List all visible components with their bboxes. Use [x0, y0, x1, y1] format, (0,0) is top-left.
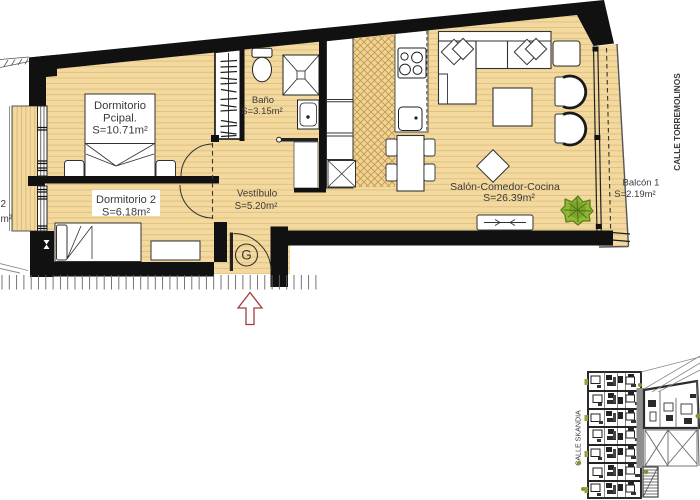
- svg-text:G: G: [241, 248, 252, 263]
- svg-text:Dormitorio: Dormitorio: [94, 100, 146, 112]
- svg-text:S=5.20m²: S=5.20m²: [235, 201, 278, 212]
- svg-text:2: 2: [1, 199, 7, 210]
- svg-text:Pcipal.: Pcipal.: [103, 113, 137, 125]
- svg-text:m²: m²: [1, 214, 13, 225]
- svg-text:Dormitorio 2: Dormitorio 2: [96, 194, 156, 206]
- svg-text:Vestíbulo: Vestíbulo: [237, 189, 278, 200]
- svg-text:CALLE TORREMOLINOS: CALLE TORREMOLINOS: [672, 73, 682, 171]
- svg-text:S=6.18m²: S=6.18m²: [102, 207, 150, 219]
- svg-text:CALLE SKANDIA: CALLE SKANDIA: [575, 410, 583, 466]
- svg-text:S=2.19m²: S=2.19m²: [614, 189, 655, 200]
- svg-text:S=3.15m²: S=3.15m²: [241, 106, 282, 117]
- svg-text:S=10.71m²: S=10.71m²: [92, 125, 148, 137]
- svg-text:Baño: Baño: [252, 95, 274, 106]
- svg-text:S=26.39m²: S=26.39m²: [483, 192, 535, 204]
- svg-text:Balcón 1: Balcón 1: [623, 178, 660, 189]
